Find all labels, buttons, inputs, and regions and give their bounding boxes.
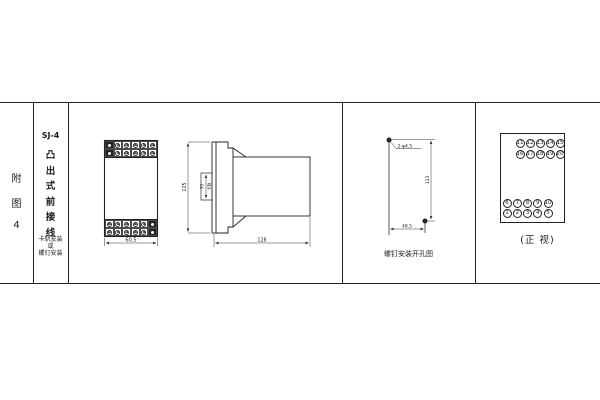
screw-icon (115, 151, 120, 156)
screw-icon (151, 223, 154, 226)
terminal-number: 8 (523, 199, 532, 208)
terminal-face-caption: (正 视) (475, 232, 600, 246)
table-border-top (0, 102, 600, 103)
terminal-number: 11 (516, 139, 525, 148)
type-char: 出 (33, 163, 68, 177)
width-dimension-label: 60.5 (125, 238, 136, 244)
terminal-number: 6 (503, 199, 512, 208)
depth-dimension-label: 128 (257, 237, 266, 243)
terminal-screw-cell (105, 149, 114, 157)
type-char: 式 (33, 178, 68, 192)
figure-label: 附 图 4 (0, 170, 33, 241)
screw-icon (124, 151, 129, 156)
screw-icon (141, 143, 146, 148)
terminal-screw-cell (114, 228, 123, 236)
terminal-screw-cell (140, 141, 149, 149)
drill-diagram-caption: 螺钉安装开孔图 (342, 249, 475, 259)
terminal-screw-cell (122, 149, 131, 157)
terminal-number: 9 (533, 199, 542, 208)
relay-body (233, 157, 310, 216)
terminal-number: 14 (546, 139, 555, 148)
screw-icon (133, 151, 138, 156)
terminal-number: 3 (523, 209, 532, 218)
screw-icon (141, 151, 146, 156)
terminal-screw-cell (148, 149, 157, 157)
terminal-screw-cell (148, 141, 157, 149)
screw-icon (150, 151, 155, 156)
terminal-number: 1 (503, 209, 512, 218)
terminal-number: 12 (526, 139, 535, 148)
terminal-screw-cell (122, 141, 131, 149)
bottom-gusset (233, 216, 246, 227)
drawing-sheet: 附 图 4 SJ-4 凸 出 式 前 接 线 卡轨安装 或 螺钉安装 60.5 (0, 0, 600, 400)
terminal-screw-cell (140, 220, 149, 228)
drill-diagram: 2-φ4.5 113 48.5 (355, 130, 465, 265)
terminal-number: 20 (556, 150, 565, 159)
screw-icon (151, 231, 154, 234)
screw-icon (108, 152, 111, 155)
terminal-screw-cell (140, 149, 149, 157)
horizontal-dimension-label: 48.5 (402, 224, 412, 230)
screw-icon (115, 222, 120, 227)
terminal-number: 7 (513, 199, 522, 208)
screw-icon (141, 222, 146, 227)
mounting-line: 螺钉安装 (33, 250, 68, 257)
figure-label-char: 4 (0, 220, 33, 231)
table-border-bottom (0, 283, 600, 284)
screw-icon (107, 230, 112, 235)
rail-label: 卡轨 (206, 183, 212, 191)
terminal-screw-cell (105, 220, 114, 228)
model-label: SJ-4 (33, 131, 68, 140)
terminal-number: 16 (516, 150, 525, 159)
terminal-screw-cell (140, 228, 149, 236)
screw-icon (115, 143, 120, 148)
terminal-number: 17 (526, 150, 535, 159)
terminal-screw-cell (114, 220, 123, 228)
terminal-screw-cell (131, 220, 140, 228)
screw-icon (107, 222, 112, 227)
terminal-number: 19 (546, 150, 555, 159)
terminal-number: 4 (533, 209, 542, 218)
mounting-line: 或 (33, 243, 68, 250)
screw-icon (124, 143, 129, 148)
terminal-strip-top (104, 140, 158, 158)
terminal-number: 10 (544, 199, 553, 208)
rail-dimension-label: 35 (200, 184, 205, 190)
table-divider-2 (68, 102, 69, 283)
screw-icon (108, 144, 111, 147)
screw-icon (133, 230, 138, 235)
screw-icon (115, 230, 120, 235)
terminal-screw-cell (131, 149, 140, 157)
terminal-screw-cell (122, 228, 131, 236)
side-view-drawing: 125 35 卡轨 128 (180, 135, 320, 250)
terminal-screw-cell (114, 149, 123, 157)
table-divider-4 (475, 102, 476, 283)
type-char: 前 (33, 194, 68, 208)
height-dimension-label: 125 (182, 182, 188, 191)
terminal-number: 13 (536, 139, 545, 148)
screw-icon (124, 230, 129, 235)
terminal-screw-cell (105, 141, 114, 149)
terminal-number: 15 (556, 139, 565, 148)
terminal-screw-cell (131, 141, 140, 149)
hole-size-label: 2-φ4.5 (398, 144, 413, 150)
terminal-number: 5 (544, 209, 553, 218)
terminal-face-view: 1112131415161718192067891012345 (500, 133, 565, 223)
type-label: 凸 出 式 前 接 线 (33, 147, 68, 240)
terminal-screw-cell (148, 220, 157, 228)
terminal-screw-cell (122, 220, 131, 228)
terminal-screw-cell (114, 141, 123, 149)
figure-label-char: 图 (0, 195, 33, 210)
type-char: 接 (33, 209, 68, 223)
screw-icon (150, 143, 155, 148)
top-gusset (233, 148, 246, 157)
terminal-number: 2 (513, 209, 522, 218)
screw-icon (133, 143, 138, 148)
screw-icon (133, 222, 138, 227)
top-step (216, 142, 233, 157)
vertical-dimension-label: 113 (425, 176, 431, 185)
mounting-note: 卡轨安装 或 螺钉安装 (33, 236, 68, 257)
flange-plate (212, 142, 216, 233)
type-char: 凸 (33, 147, 68, 161)
terminal-screw-cell (148, 228, 157, 236)
terminal-number: 18 (536, 150, 545, 159)
bottom-step (216, 216, 233, 233)
figure-label-char: 附 (0, 170, 33, 185)
terminal-screw-cell (131, 228, 140, 236)
terminal-screw-cell (105, 228, 114, 236)
terminal-strip-bottom (104, 219, 158, 237)
screw-icon (141, 230, 146, 235)
mounting-line: 卡轨安装 (33, 236, 68, 243)
screw-icon (124, 222, 129, 227)
